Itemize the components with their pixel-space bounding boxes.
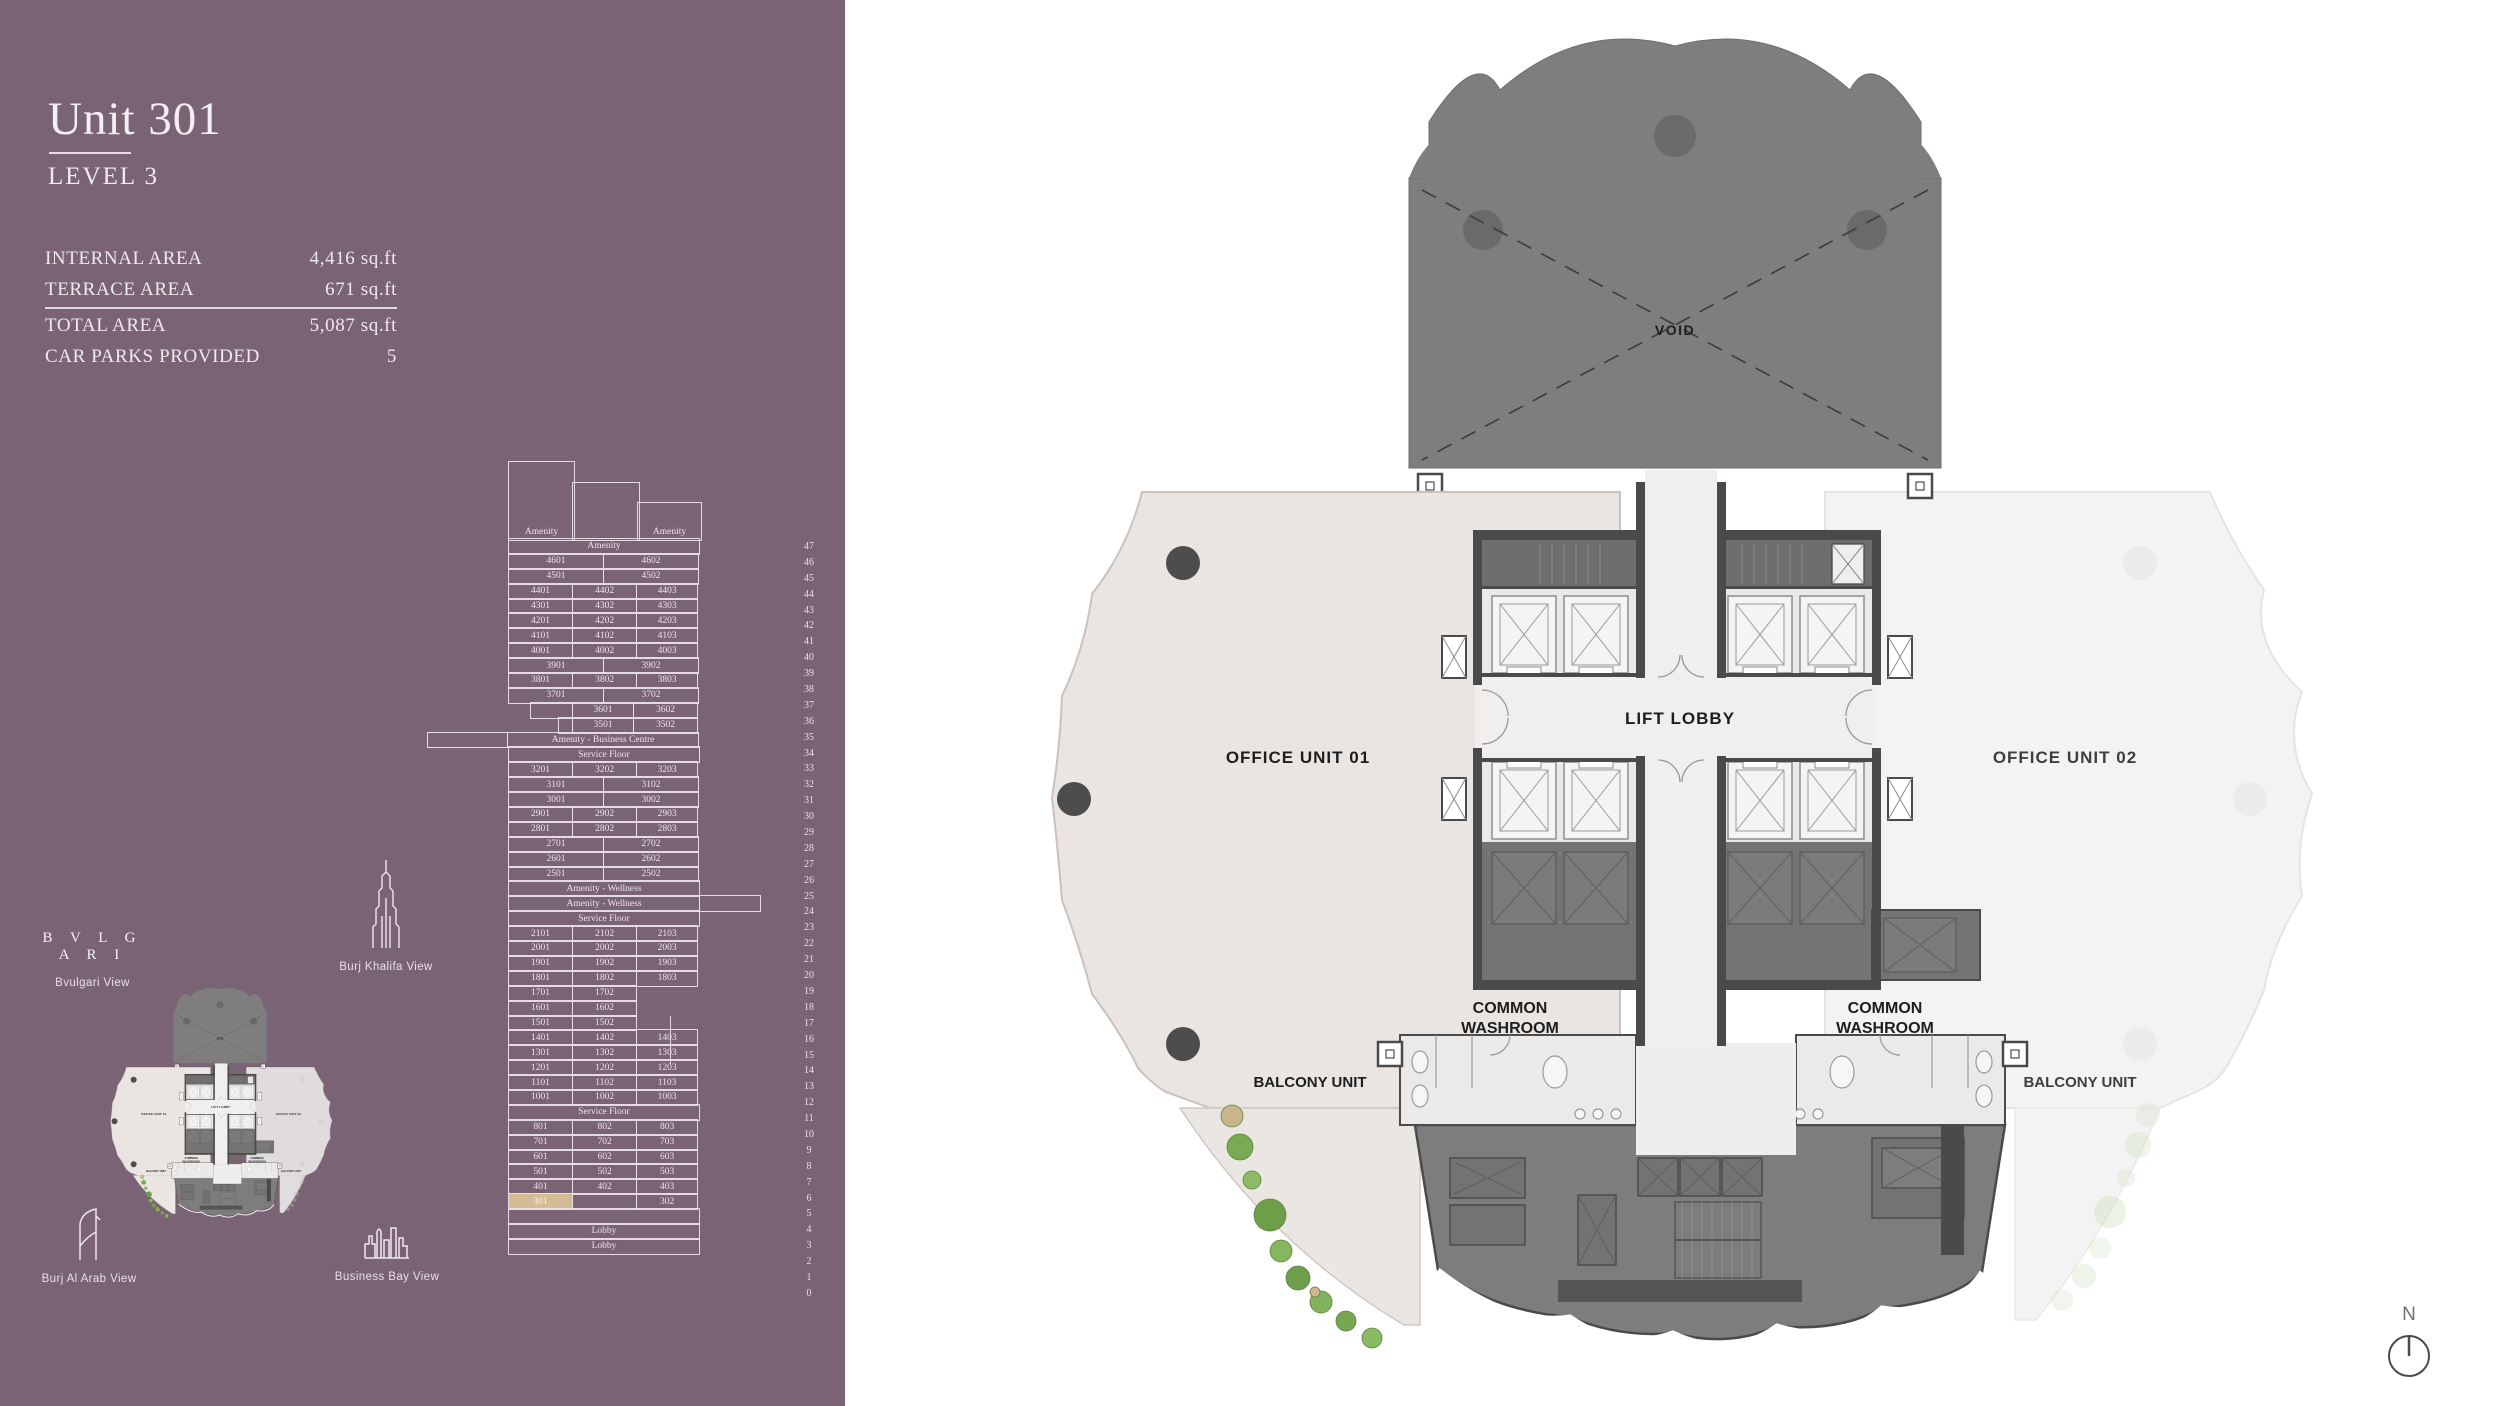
stat-value: 671 sq.ft: [325, 274, 397, 305]
stack-floor-number-28: 28: [795, 841, 823, 857]
stack-floor-number-35: 35: [795, 730, 823, 746]
stack-unit-1803[interactable]: 1803: [636, 970, 698, 987]
stack-floor-number-32: 32: [795, 777, 823, 793]
stack-empty-cell: [427, 732, 508, 749]
stack-floor-number-12: 12: [795, 1095, 823, 1111]
stat-label: INTERNAL AREA: [45, 243, 203, 274]
stack-floor-numbers: 4746454443424140393837363534333231302928…: [795, 539, 823, 1302]
stack-floor-number-30: 30: [795, 809, 823, 825]
stack-floor-number-31: 31: [795, 793, 823, 809]
business-bay-skyline-icon: [363, 1222, 411, 1260]
stack-crown-middle: [572, 482, 640, 541]
stack-floor-number-13: 13: [795, 1079, 823, 1095]
stack-floor-number-39: 39: [795, 666, 823, 682]
stack-floor-number-40: 40: [795, 650, 823, 666]
stack-floor-number-33: 33: [795, 761, 823, 777]
stack-floor-number-43: 43: [795, 603, 823, 619]
stack-floor-number-5: 5: [795, 1206, 823, 1222]
stack-floor-number-17: 17: [795, 1016, 823, 1032]
brochure-page: Unit 301 LEVEL 3 INTERNAL AREA 4,416 sq.…: [0, 0, 2500, 1406]
stack-floor-number-20: 20: [795, 968, 823, 984]
stack-floor-number-26: 26: [795, 873, 823, 889]
stack-floor-number-9: 9: [795, 1143, 823, 1159]
stack-floor-number-42: 42: [795, 618, 823, 634]
stack-floor-number-37: 37: [795, 698, 823, 714]
stack-floor-number-0: 0: [795, 1286, 823, 1302]
stat-row-car-parks: CAR PARKS PROVIDED 5: [45, 341, 397, 372]
stack-crown-right: Amenity: [637, 502, 702, 541]
stack-floor-number-2: 2: [795, 1254, 823, 1270]
title-underline: [49, 152, 131, 154]
stat-value: 4,416 sq.ft: [310, 243, 397, 274]
stack-floor-number-44: 44: [795, 587, 823, 603]
stack-floor-number-47: 47: [795, 539, 823, 555]
stack-floor-number-18: 18: [795, 1000, 823, 1016]
stack-row-0: Lobby: [508, 1239, 700, 1255]
stack-crown-left: Amenity: [508, 461, 575, 541]
view-marker-bvlgari: B V L G A R I Bvulgari View: [35, 930, 150, 989]
stack-floor-number-1: 1: [795, 1270, 823, 1286]
building-stack-diagram: Amenity460146024501450244014402440343014…: [508, 539, 700, 1255]
stack-floor-number-16: 16: [795, 1032, 823, 1048]
stack-floor-number-7: 7: [795, 1175, 823, 1191]
stack-crown-left-label: Amenity: [509, 527, 574, 537]
stack-crown-right-label: Amenity: [638, 527, 701, 537]
stack-floor-number-27: 27: [795, 857, 823, 873]
stack-floor-number-3: 3: [795, 1238, 823, 1254]
page-title: Unit 301: [48, 92, 222, 146]
stack-floor-number-23: 23: [795, 920, 823, 936]
stack-floor-number-8: 8: [795, 1159, 823, 1175]
stack-floor-number-15: 15: [795, 1048, 823, 1064]
view-marker-business-bay: Business Bay View: [328, 1222, 446, 1283]
mini-key-plan: [98, 986, 358, 1228]
stack-floor-number-29: 29: [795, 825, 823, 841]
main-floor-plan: [1052, 39, 2312, 1348]
stack-label-cell: Lobby: [508, 1238, 700, 1255]
stack-floor-number-11: 11: [795, 1111, 823, 1127]
stack-floor-number-36: 36: [795, 714, 823, 730]
stack-floor-number-14: 14: [795, 1063, 823, 1079]
compass: N: [2389, 1304, 2429, 1376]
stack-floor-number-45: 45: [795, 571, 823, 587]
stat-label: TERRACE AREA: [45, 274, 194, 305]
view-marker-burj-khalifa: Burj Khalifa View: [327, 858, 445, 973]
floor-plan: OFFICE UNIT 02 BALCONY UNIT: [980, 30, 2460, 1406]
stat-label: CAR PARKS PROVIDED: [45, 341, 260, 372]
stack-floor-number-10: 10: [795, 1127, 823, 1143]
sidebar: Unit 301 LEVEL 3 INTERNAL AREA 4,416 sq.…: [0, 0, 845, 1406]
stat-label: TOTAL AREA: [45, 310, 166, 341]
stack-floor-number-6: 6: [795, 1191, 823, 1207]
view-label-burj-khalifa: Burj Khalifa View: [327, 961, 445, 973]
stat-row-terrace-area: TERRACE AREA 671 sq.ft: [45, 274, 397, 305]
stack-step-line: [670, 1016, 671, 1064]
level-subtitle: LEVEL 3: [48, 163, 159, 191]
stack-floor-number-21: 21: [795, 952, 823, 968]
compass-north-label: N: [2402, 1304, 2416, 1325]
stat-row-internal-area: INTERNAL AREA 4,416 sq.ft: [45, 243, 397, 274]
stack-floor-number-22: 22: [795, 936, 823, 952]
area-stats-table: INTERNAL AREA 4,416 sq.ft TERRACE AREA 6…: [45, 243, 397, 372]
stack-floor-number-34: 34: [795, 746, 823, 762]
stack-floor-number-25: 25: [795, 889, 823, 905]
bvlgari-logo: B V L G A R I: [35, 930, 150, 964]
view-label-business-bay: Business Bay View: [328, 1271, 446, 1283]
stack-floor-number-41: 41: [795, 634, 823, 650]
stack-floor-number-46: 46: [795, 555, 823, 571]
stats-divider: [45, 307, 397, 309]
stack-floor-number-24: 24: [795, 904, 823, 920]
burj-khalifa-icon: [369, 858, 403, 950]
stat-row-total-area: TOTAL AREA 5,087 sq.ft: [45, 310, 397, 341]
stack-floor-number-38: 38: [795, 682, 823, 698]
stack-floor-number-4: 4: [795, 1222, 823, 1238]
stat-value: 5,087 sq.ft: [310, 310, 397, 341]
stack-floor-number-19: 19: [795, 984, 823, 1000]
stack-empty-cell: [699, 895, 761, 912]
stat-value: 5: [387, 341, 397, 372]
view-label-burj-al-arab: Burj Al Arab View: [30, 1273, 148, 1285]
